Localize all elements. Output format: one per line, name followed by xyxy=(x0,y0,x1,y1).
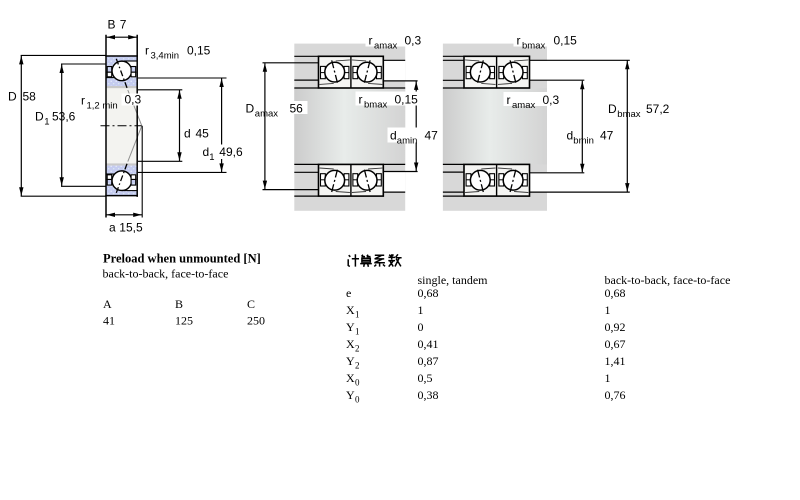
svg-text:1: 1 xyxy=(44,117,49,128)
svg-text:1: 1 xyxy=(605,303,611,317)
svg-text:X: X xyxy=(346,371,355,385)
svg-text:Y: Y xyxy=(346,388,355,402)
svg-text:125: 125 xyxy=(175,314,193,328)
svg-text:0,87: 0,87 xyxy=(418,354,439,368)
svg-text:15,5: 15,5 xyxy=(119,221,143,235)
svg-text:1,41: 1,41 xyxy=(605,354,626,368)
svg-text:D: D xyxy=(35,110,44,124)
svg-text:A: A xyxy=(103,297,112,311)
svg-text:D: D xyxy=(246,102,255,116)
svg-text:amin: amin xyxy=(397,136,418,147)
svg-text:back-to-back, face-to-face: back-to-back, face-to-face xyxy=(605,273,731,287)
svg-text:Y: Y xyxy=(346,320,355,334)
svg-text:single, tandem: single, tandem xyxy=(418,273,489,287)
svg-text:0,68: 0,68 xyxy=(418,286,439,300)
svg-text:r: r xyxy=(145,44,149,58)
svg-text:r: r xyxy=(81,94,85,108)
svg-text:250: 250 xyxy=(247,314,265,328)
svg-text:0,3: 0,3 xyxy=(405,34,422,48)
svg-text:r: r xyxy=(507,93,511,107)
svg-text:D: D xyxy=(8,90,17,104)
svg-text:3,4min: 3,4min xyxy=(151,51,180,62)
svg-text:53,6: 53,6 xyxy=(52,110,76,124)
svg-text:57,2: 57,2 xyxy=(646,102,670,116)
svg-text:a: a xyxy=(109,221,116,235)
svg-text:D: D xyxy=(608,102,617,116)
svg-text:0,67: 0,67 xyxy=(605,337,626,351)
svg-text:0,76: 0,76 xyxy=(605,388,626,402)
svg-text:0,41: 0,41 xyxy=(418,337,439,351)
svg-text:1,2 min: 1,2 min xyxy=(87,101,118,112)
svg-text:1: 1 xyxy=(355,327,360,337)
svg-text:7: 7 xyxy=(120,18,127,32)
svg-text:56: 56 xyxy=(290,102,304,116)
svg-text:0: 0 xyxy=(355,395,360,405)
svg-text:0,15: 0,15 xyxy=(395,93,419,107)
svg-text:2: 2 xyxy=(355,344,360,354)
svg-text:1: 1 xyxy=(605,371,611,385)
svg-text:0,38: 0,38 xyxy=(418,388,439,402)
svg-text:bmax: bmax xyxy=(364,100,387,111)
svg-text:bmax: bmax xyxy=(617,109,640,120)
svg-text:49,6: 49,6 xyxy=(219,145,243,159)
svg-text:0,15: 0,15 xyxy=(554,34,578,48)
svg-text:back-to-back, face-to-face: back-to-back, face-to-face xyxy=(103,267,229,281)
svg-text:B: B xyxy=(175,297,183,311)
svg-text:1: 1 xyxy=(209,152,214,163)
svg-text:0,15: 0,15 xyxy=(187,44,211,58)
svg-text:r: r xyxy=(359,93,363,107)
svg-text:41: 41 xyxy=(103,314,115,328)
svg-text:0,3: 0,3 xyxy=(125,93,142,107)
svg-text:r: r xyxy=(369,34,373,48)
svg-text:d: d xyxy=(390,129,397,143)
svg-text:X: X xyxy=(346,337,355,351)
svg-text:d: d xyxy=(567,129,574,143)
svg-text:0: 0 xyxy=(418,320,424,334)
svg-text:r: r xyxy=(517,34,521,48)
svg-text:45: 45 xyxy=(196,127,210,141)
svg-text:0,3: 0,3 xyxy=(543,93,560,107)
svg-text:47: 47 xyxy=(425,129,439,143)
svg-text:2: 2 xyxy=(355,361,360,371)
svg-text:X: X xyxy=(346,303,355,317)
svg-text:0,5: 0,5 xyxy=(418,371,433,385)
svg-text:0: 0 xyxy=(355,378,360,388)
svg-text:d: d xyxy=(184,127,191,141)
svg-text:0,92: 0,92 xyxy=(605,320,626,334)
svg-text:47: 47 xyxy=(600,129,614,143)
svg-text:1: 1 xyxy=(355,310,360,320)
svg-text:bmax: bmax xyxy=(522,41,545,52)
svg-text:d: d xyxy=(203,145,210,159)
svg-text:bmin: bmin xyxy=(573,136,594,147)
svg-text:Y: Y xyxy=(346,354,355,368)
svg-text:1: 1 xyxy=(418,303,424,317)
svg-text:amax: amax xyxy=(512,100,535,111)
svg-text:e: e xyxy=(346,286,351,300)
svg-text:58: 58 xyxy=(23,90,37,104)
svg-text:B: B xyxy=(108,18,116,32)
svg-text:0,68: 0,68 xyxy=(605,286,626,300)
svg-text:Preload when unmounted [N]: Preload when unmounted [N] xyxy=(103,252,261,266)
svg-text:C: C xyxy=(247,297,255,311)
svg-text:amax: amax xyxy=(255,109,278,120)
svg-text:amax: amax xyxy=(374,41,397,52)
